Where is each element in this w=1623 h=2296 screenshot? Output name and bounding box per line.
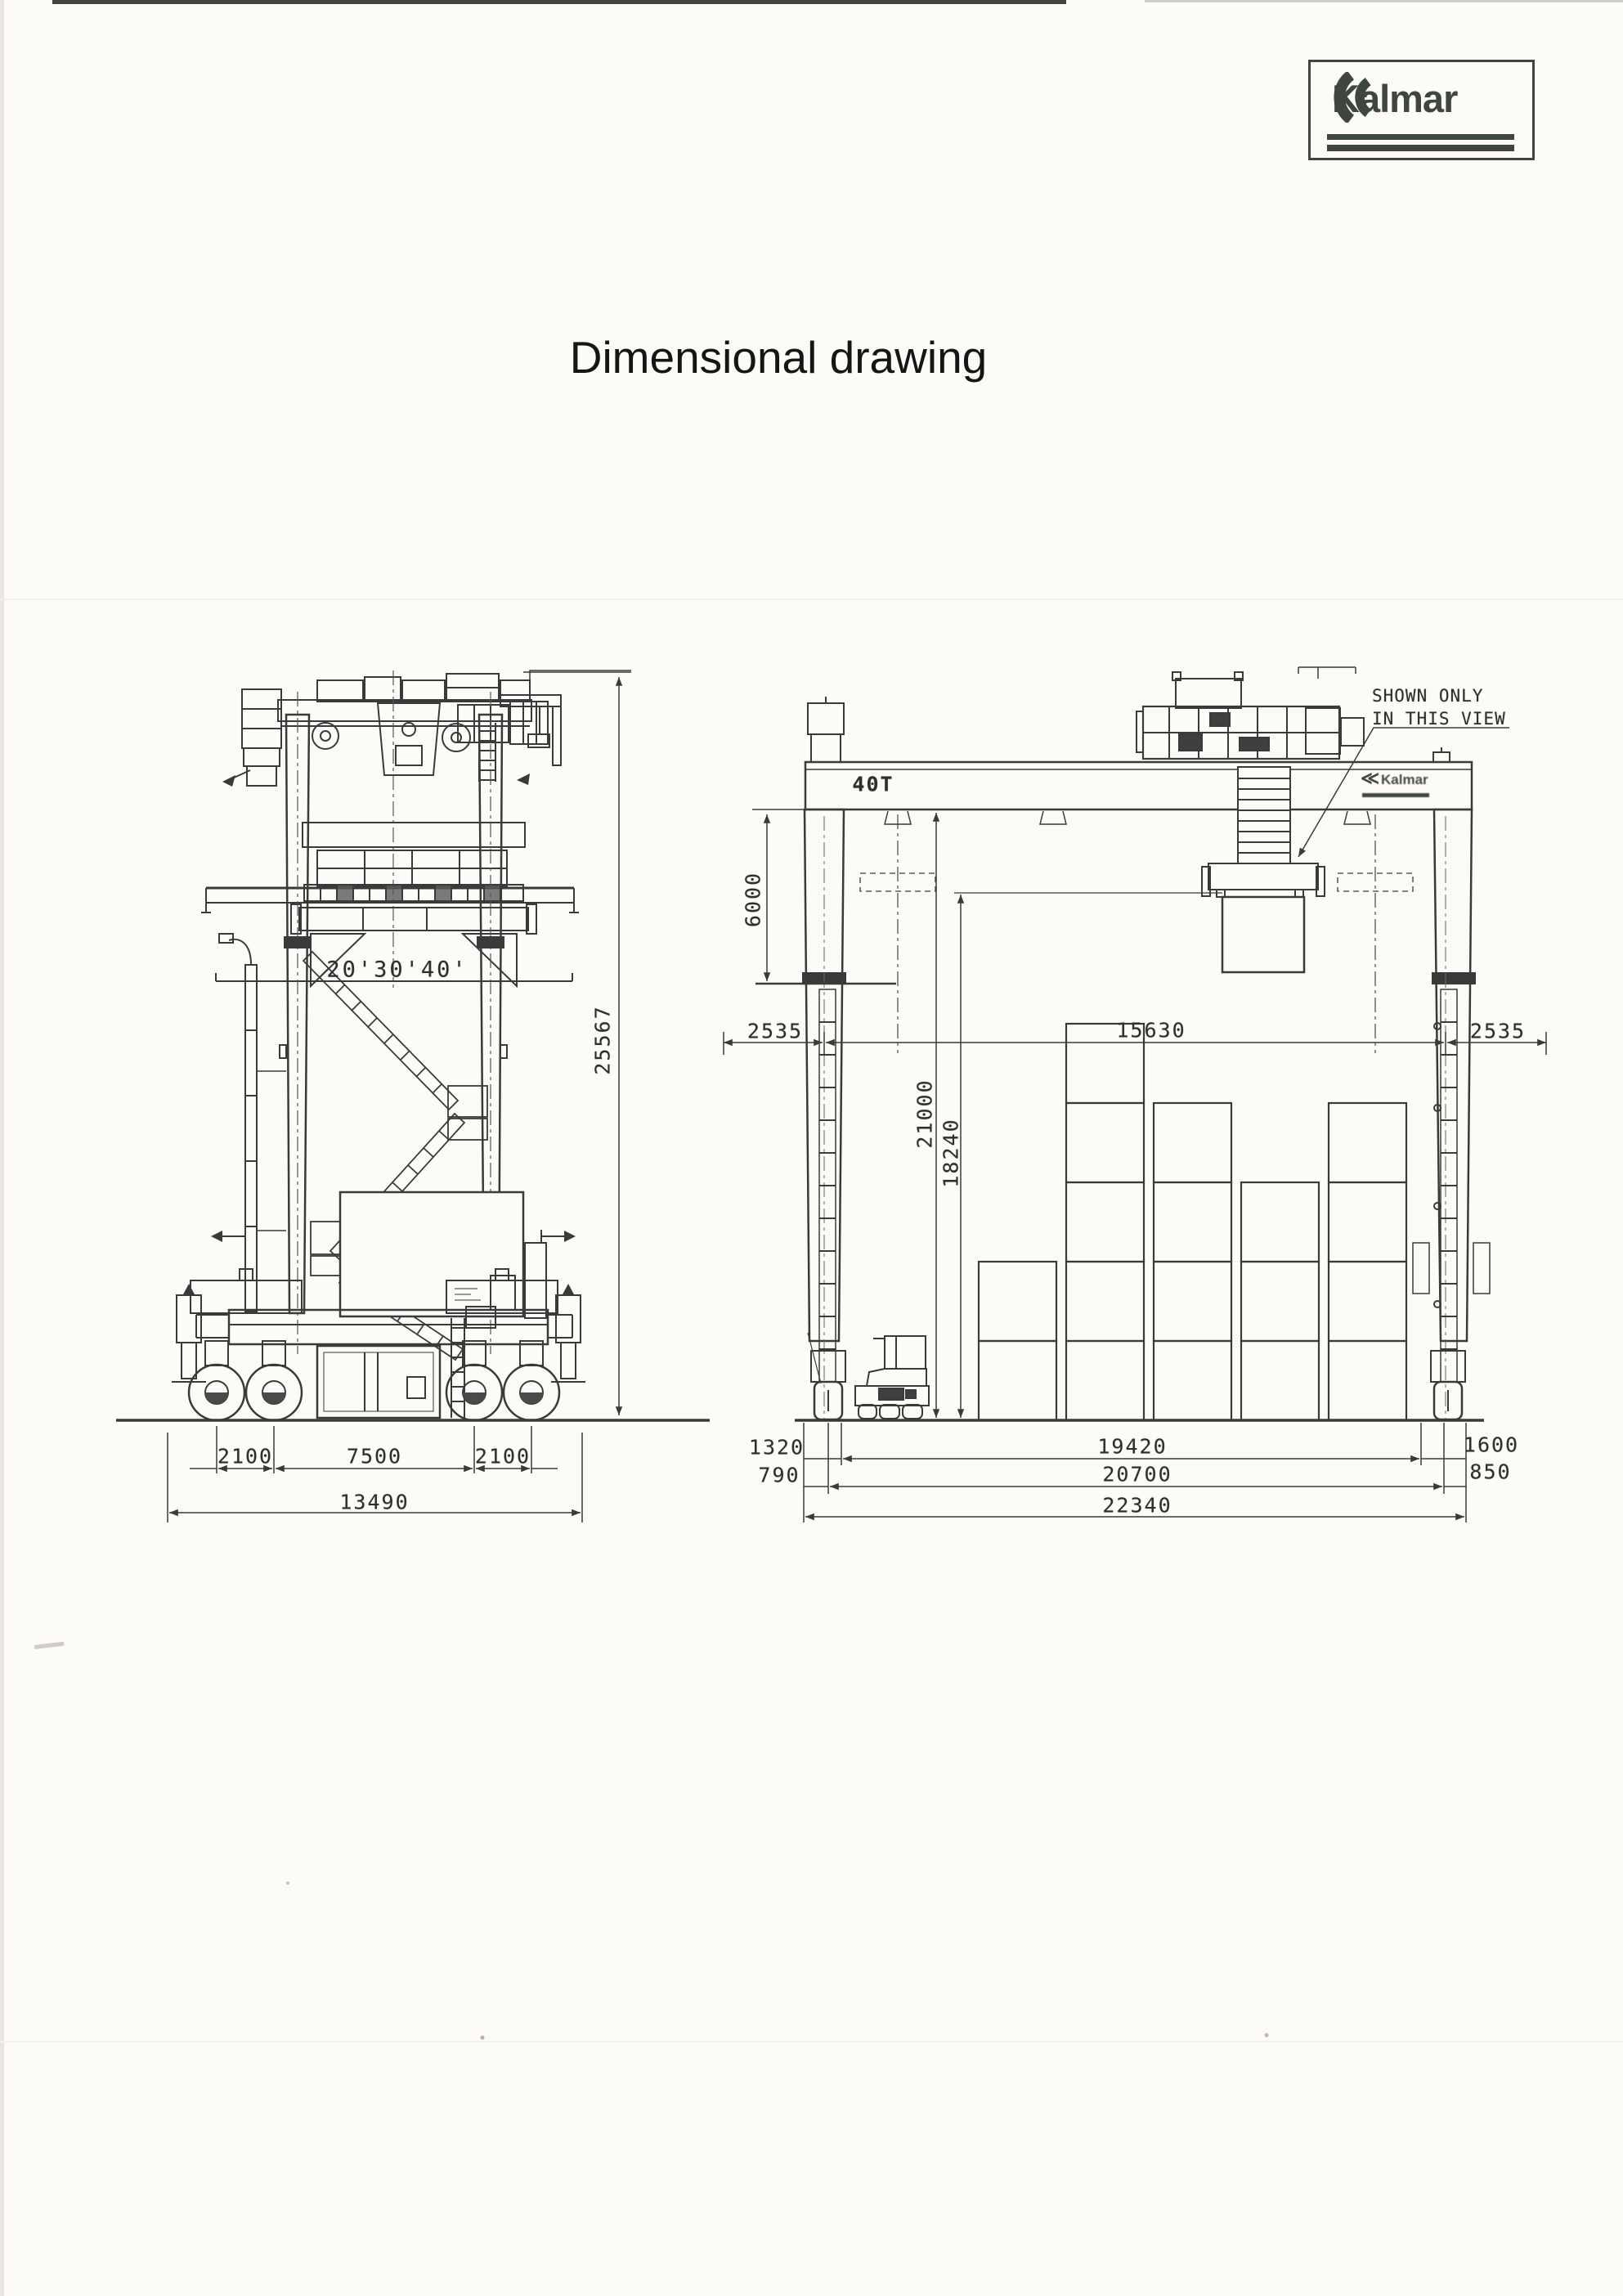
front-view-dimension-lines — [724, 813, 1546, 1522]
beam-kalmar-chevron-icon: ≪ — [1361, 769, 1379, 789]
left-offset-top-dim: 1320 — [749, 1436, 805, 1460]
front-view-spreader-and-container — [1202, 767, 1325, 972]
logo-bar-bottom — [1327, 145, 1514, 151]
page-title: Dimensional drawing — [570, 331, 988, 383]
kalmar-logo-box: Kalmar — [1308, 60, 1535, 160]
front-view-ghost-positions — [860, 811, 1413, 1053]
logo-bar-top — [1327, 134, 1514, 140]
capacity-label: 40T — [852, 773, 894, 796]
overall-height-dim: 25567 — [591, 1005, 615, 1074]
side-clearance-left-dim: 2535 — [747, 1020, 803, 1043]
overall-width-dim: 22340 — [1102, 1494, 1172, 1518]
note-line-2: IN THIS VIEW — [1372, 709, 1506, 729]
overall-length-dim: 13490 — [339, 1491, 409, 1514]
lift-height-dim: 21000 — [913, 1078, 937, 1148]
outer-span-dim: 20700 — [1102, 1463, 1172, 1487]
rail-span-dim: 19420 — [1097, 1435, 1167, 1459]
kalmar-chevron-icon — [1325, 72, 1373, 123]
side-clearance-right-dim: 2535 — [1470, 1020, 1526, 1043]
span-inner-dim: 15630 — [1116, 1019, 1186, 1043]
container-sizes-label: 20'30'40' — [326, 957, 468, 983]
front-view-trolley — [1137, 667, 1364, 759]
side-view-drawing — [116, 670, 710, 1522]
side-view-powerpack — [340, 1192, 546, 1318]
side-view-exhaust-mast — [219, 934, 286, 1312]
beam-kalmar-logo-text: Kalmar — [1381, 772, 1428, 787]
right-offset-bottom-dim: 850 — [1469, 1460, 1511, 1484]
left-offset-bottom-dim: 790 — [758, 1464, 800, 1487]
stack-height-dim: 18240 — [939, 1118, 963, 1187]
wheelbase-dim: 7500 — [347, 1445, 402, 1469]
right-offset-top-dim: 1600 — [1464, 1433, 1519, 1457]
front-view-truck — [855, 1336, 929, 1419]
note-line-1: SHOWN ONLY — [1372, 686, 1483, 706]
axle-spacing-left-dim: 2100 — [217, 1445, 273, 1469]
scanned-dimensional-drawing-page: Dimensional drawing Kalmar 20'30'40' 255… — [0, 0, 1623, 2296]
hoist-dimension: 6000 — [742, 872, 765, 927]
side-view-dimension-lines — [168, 672, 631, 1522]
beam-kalmar-logo: ≪Kalmar — [1361, 769, 1442, 803]
front-view-container-stacks — [979, 1024, 1406, 1420]
front-view-legs — [803, 809, 1490, 1419]
beam-logo-underline — [1362, 793, 1429, 797]
axle-spacing-right-dim: 2100 — [475, 1445, 531, 1469]
